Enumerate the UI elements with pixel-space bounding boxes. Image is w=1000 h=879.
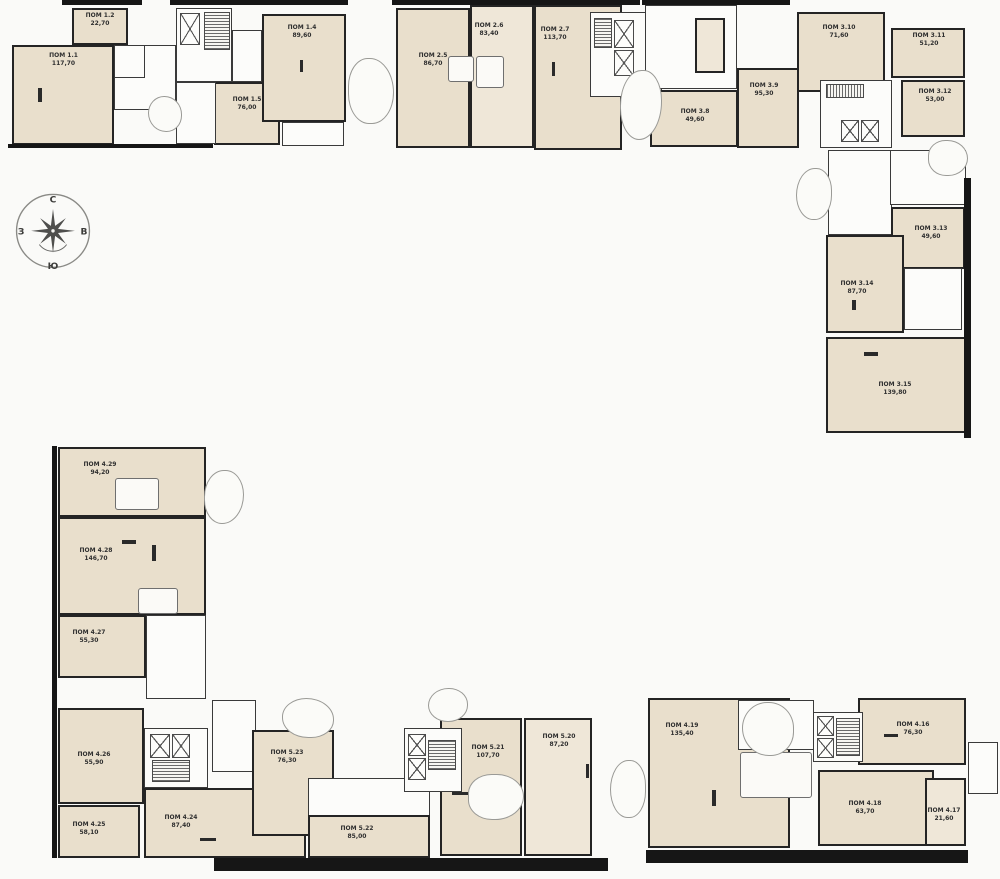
unit-3-12-label: ПОМ 3.1253,00 bbox=[906, 88, 964, 104]
elevator-shaft-icon bbox=[841, 120, 859, 142]
floor-plan-canvas: ПОМ 1.1117,70 ПОМ 1.222,70 ПОМ 1.489,60 … bbox=[0, 0, 1000, 879]
elevator-shaft-icon bbox=[408, 734, 426, 756]
interior-mark bbox=[122, 540, 136, 544]
unit-name: ПОМ 4.18 bbox=[834, 800, 896, 808]
elevator-shaft-icon bbox=[150, 734, 170, 758]
unit-name: ПОМ 4.29 bbox=[68, 461, 132, 469]
unit-area: 87,20 bbox=[530, 741, 588, 749]
interior-mark bbox=[852, 300, 856, 310]
unit-name: ПОМ 2.7 bbox=[524, 26, 586, 34]
elevator-shaft-icon bbox=[408, 758, 426, 780]
wall bbox=[214, 858, 608, 871]
unit-name: ПОМ 4.28 bbox=[64, 547, 128, 555]
stairs-icon bbox=[152, 760, 190, 782]
corridor bbox=[176, 82, 216, 144]
interior-mark bbox=[586, 764, 589, 778]
unit-area: 22,70 bbox=[74, 20, 126, 28]
unit-4-19-label: ПОМ 4.19135,40 bbox=[650, 722, 714, 738]
wall bbox=[392, 0, 640, 5]
unit-area: 83,40 bbox=[458, 30, 520, 38]
unit-3-13-label: ПОМ 3.1349,60 bbox=[902, 225, 960, 241]
elevator-shaft-icon bbox=[861, 120, 879, 142]
cloud-outline bbox=[148, 96, 182, 132]
unit-area: 139,80 bbox=[864, 389, 926, 397]
room bbox=[114, 45, 145, 78]
interior-mark bbox=[152, 545, 156, 561]
interior-mark bbox=[712, 790, 716, 806]
unit-area: 51,20 bbox=[898, 40, 960, 48]
unit-area: 53,00 bbox=[906, 96, 964, 104]
unit-3-8-label: ПОМ 3.849,60 bbox=[662, 108, 728, 124]
unit-area: 55,30 bbox=[60, 637, 118, 645]
unit-4-28-label: ПОМ 4.28146,70 bbox=[64, 547, 128, 563]
wall bbox=[964, 178, 971, 438]
interior-mark bbox=[452, 792, 468, 795]
stairs-icon bbox=[594, 18, 612, 48]
wall bbox=[52, 446, 57, 858]
unit-1-2-label: ПОМ 1.222,70 bbox=[74, 12, 126, 28]
unit-area: 55,90 bbox=[62, 759, 126, 767]
compass-rose: С В Ю З bbox=[12, 188, 94, 272]
unit-1-1-label: ПОМ 1.1117,70 bbox=[16, 52, 111, 68]
bathroom-pod bbox=[115, 478, 159, 510]
room bbox=[828, 150, 892, 235]
unit-area: 63,70 bbox=[834, 808, 896, 816]
compass-east-label: В bbox=[81, 228, 88, 238]
wall bbox=[646, 850, 968, 863]
unit-name: ПОМ 3.11 bbox=[898, 32, 960, 40]
unit-2-5-label: ПОМ 2.586,70 bbox=[400, 52, 466, 68]
unit-area: 76,30 bbox=[256, 757, 318, 765]
compass-north-label: С bbox=[50, 196, 57, 206]
unit-5-23-label: ПОМ 5.2376,30 bbox=[256, 749, 318, 765]
unit-area: 89,60 bbox=[268, 32, 336, 40]
unit-name: ПОМ 5.23 bbox=[256, 749, 318, 757]
unit-name: ПОМ 4.26 bbox=[62, 751, 126, 759]
unit-area: 95,30 bbox=[733, 90, 795, 98]
unit-2-6-label: ПОМ 2.683,40 bbox=[458, 22, 520, 38]
unit-name: ПОМ 1.2 bbox=[74, 12, 126, 20]
unit-name: ПОМ 5.22 bbox=[326, 825, 388, 833]
cloud-outline bbox=[742, 702, 794, 756]
elevator-shaft-icon bbox=[614, 50, 634, 76]
unit-name: ПОМ 4.16 bbox=[882, 721, 944, 729]
unit-4-27-label: ПОМ 4.2755,30 bbox=[60, 629, 118, 645]
unit-area: 87,40 bbox=[150, 822, 212, 830]
elevator-shaft-icon bbox=[180, 13, 200, 45]
unit-1-5-label: ПОМ 1.576,00 bbox=[216, 96, 278, 112]
unit-name: ПОМ 4.25 bbox=[58, 821, 120, 829]
elevator-shaft-icon bbox=[172, 734, 190, 758]
room bbox=[282, 122, 344, 146]
unit-4-25-label: ПОМ 4.2558,10 bbox=[58, 821, 120, 837]
unit-area: 117,70 bbox=[16, 60, 111, 68]
room bbox=[695, 18, 725, 73]
unit-name: ПОМ 3.12 bbox=[906, 88, 964, 96]
unit-4-17-label: ПОМ 4.1721,60 bbox=[918, 807, 970, 823]
unit-area: 86,70 bbox=[400, 60, 466, 68]
wall bbox=[170, 0, 348, 5]
unit-name: ПОМ 3.15 bbox=[864, 381, 926, 389]
unit-name: ПОМ 1.5 bbox=[216, 96, 278, 104]
interior-mark bbox=[200, 838, 216, 841]
unit-name: ПОМ 3.14 bbox=[828, 280, 886, 288]
unit-area: 94,20 bbox=[68, 469, 132, 477]
elevator-shaft-icon bbox=[817, 738, 834, 758]
cloud-outline bbox=[610, 760, 646, 818]
cloud-outline bbox=[928, 140, 968, 176]
unit-area: 49,60 bbox=[662, 116, 728, 124]
unit-4-26-label: ПОМ 4.2655,90 bbox=[62, 751, 126, 767]
unit-name: ПОМ 3.10 bbox=[806, 24, 872, 32]
elevator-shaft-icon bbox=[614, 20, 634, 48]
bathroom-pod bbox=[476, 56, 504, 88]
unit-area: 76,00 bbox=[216, 104, 278, 112]
unit-area: 49,60 bbox=[902, 233, 960, 241]
unit-area: 87,70 bbox=[828, 288, 886, 296]
wall bbox=[62, 0, 142, 5]
compass-south-label: Ю bbox=[48, 262, 59, 272]
unit-3-11-label: ПОМ 3.1151,20 bbox=[898, 32, 960, 48]
compass-west-label: З bbox=[18, 228, 24, 238]
stairs-icon bbox=[826, 84, 864, 98]
unit-name: ПОМ 5.20 bbox=[530, 733, 588, 741]
compass-rose-icon: С В Ю З bbox=[12, 188, 94, 272]
unit-5-20-label: ПОМ 5.2087,20 bbox=[530, 733, 588, 749]
unit-name: ПОМ 3.13 bbox=[902, 225, 960, 233]
cloud-outline bbox=[204, 470, 244, 524]
cloud-outline bbox=[348, 58, 394, 124]
wall bbox=[8, 144, 213, 148]
unit-name: ПОМ 4.19 bbox=[650, 722, 714, 730]
unit-3-10-label: ПОМ 3.1071,60 bbox=[806, 24, 872, 40]
unit-name: ПОМ 4.24 bbox=[150, 814, 212, 822]
unit-4-24-label: ПОМ 4.2487,40 bbox=[150, 814, 212, 830]
unit-4-16-label: ПОМ 4.1676,30 bbox=[882, 721, 944, 737]
unit-area: 107,70 bbox=[458, 752, 518, 760]
unit-1-4-label: ПОМ 1.489,60 bbox=[268, 24, 336, 40]
cloud-outline bbox=[796, 168, 832, 220]
room bbox=[146, 615, 206, 699]
bathroom-pod bbox=[740, 752, 812, 798]
unit-name: ПОМ 1.4 bbox=[268, 24, 336, 32]
unit-name: ПОМ 3.9 bbox=[733, 82, 795, 90]
unit-5-21-label: ПОМ 5.21107,70 bbox=[458, 744, 518, 760]
unit-area: 58,10 bbox=[58, 829, 120, 837]
unit-4-18-label: ПОМ 4.1863,70 bbox=[834, 800, 896, 816]
unit-3-9-room bbox=[737, 68, 799, 148]
stairs-icon bbox=[836, 718, 860, 756]
unit-area: 113,70 bbox=[524, 34, 586, 42]
unit-name: ПОМ 2.5 bbox=[400, 52, 466, 60]
unit-name: ПОМ 3.8 bbox=[662, 108, 728, 116]
interior-mark bbox=[300, 60, 303, 72]
unit-area: 21,60 bbox=[918, 815, 970, 823]
unit-4-27-room bbox=[58, 615, 146, 678]
unit-3-15-label: ПОМ 3.15139,80 bbox=[864, 381, 926, 397]
interior-mark bbox=[864, 352, 878, 356]
unit-name: ПОМ 2.6 bbox=[458, 22, 520, 30]
room bbox=[968, 742, 998, 794]
unit-5-22-label: ПОМ 5.2285,00 bbox=[326, 825, 388, 841]
unit-area: 71,60 bbox=[806, 32, 872, 40]
cloud-outline bbox=[282, 698, 334, 738]
wall bbox=[642, 0, 790, 5]
elevator-shaft-icon bbox=[817, 716, 834, 736]
interior-mark bbox=[38, 88, 42, 102]
unit-area: 85,00 bbox=[326, 833, 388, 841]
unit-name: ПОМ 5.21 bbox=[458, 744, 518, 752]
stairs-icon bbox=[204, 12, 230, 50]
unit-name: ПОМ 4.27 bbox=[60, 629, 118, 637]
room bbox=[232, 30, 262, 82]
unit-area: 146,70 bbox=[64, 555, 128, 563]
stairs-icon bbox=[428, 740, 456, 770]
unit-area: 135,40 bbox=[650, 730, 714, 738]
interior-mark bbox=[552, 62, 555, 76]
unit-name: ПОМ 1.1 bbox=[16, 52, 111, 60]
unit-2-7-label: ПОМ 2.7113,70 bbox=[524, 26, 586, 42]
room bbox=[904, 268, 962, 330]
unit-3-9-label: ПОМ 3.995,30 bbox=[733, 82, 795, 98]
room bbox=[212, 700, 256, 772]
unit-name: ПОМ 4.17 bbox=[918, 807, 970, 815]
cloud-outline bbox=[428, 688, 468, 722]
unit-3-14-label: ПОМ 3.1487,70 bbox=[828, 280, 886, 296]
unit-4-28-room bbox=[58, 517, 206, 615]
bathroom-pod bbox=[138, 588, 178, 614]
unit-4-29-label: ПОМ 4.2994,20 bbox=[68, 461, 132, 477]
unit-area: 76,30 bbox=[882, 729, 944, 737]
